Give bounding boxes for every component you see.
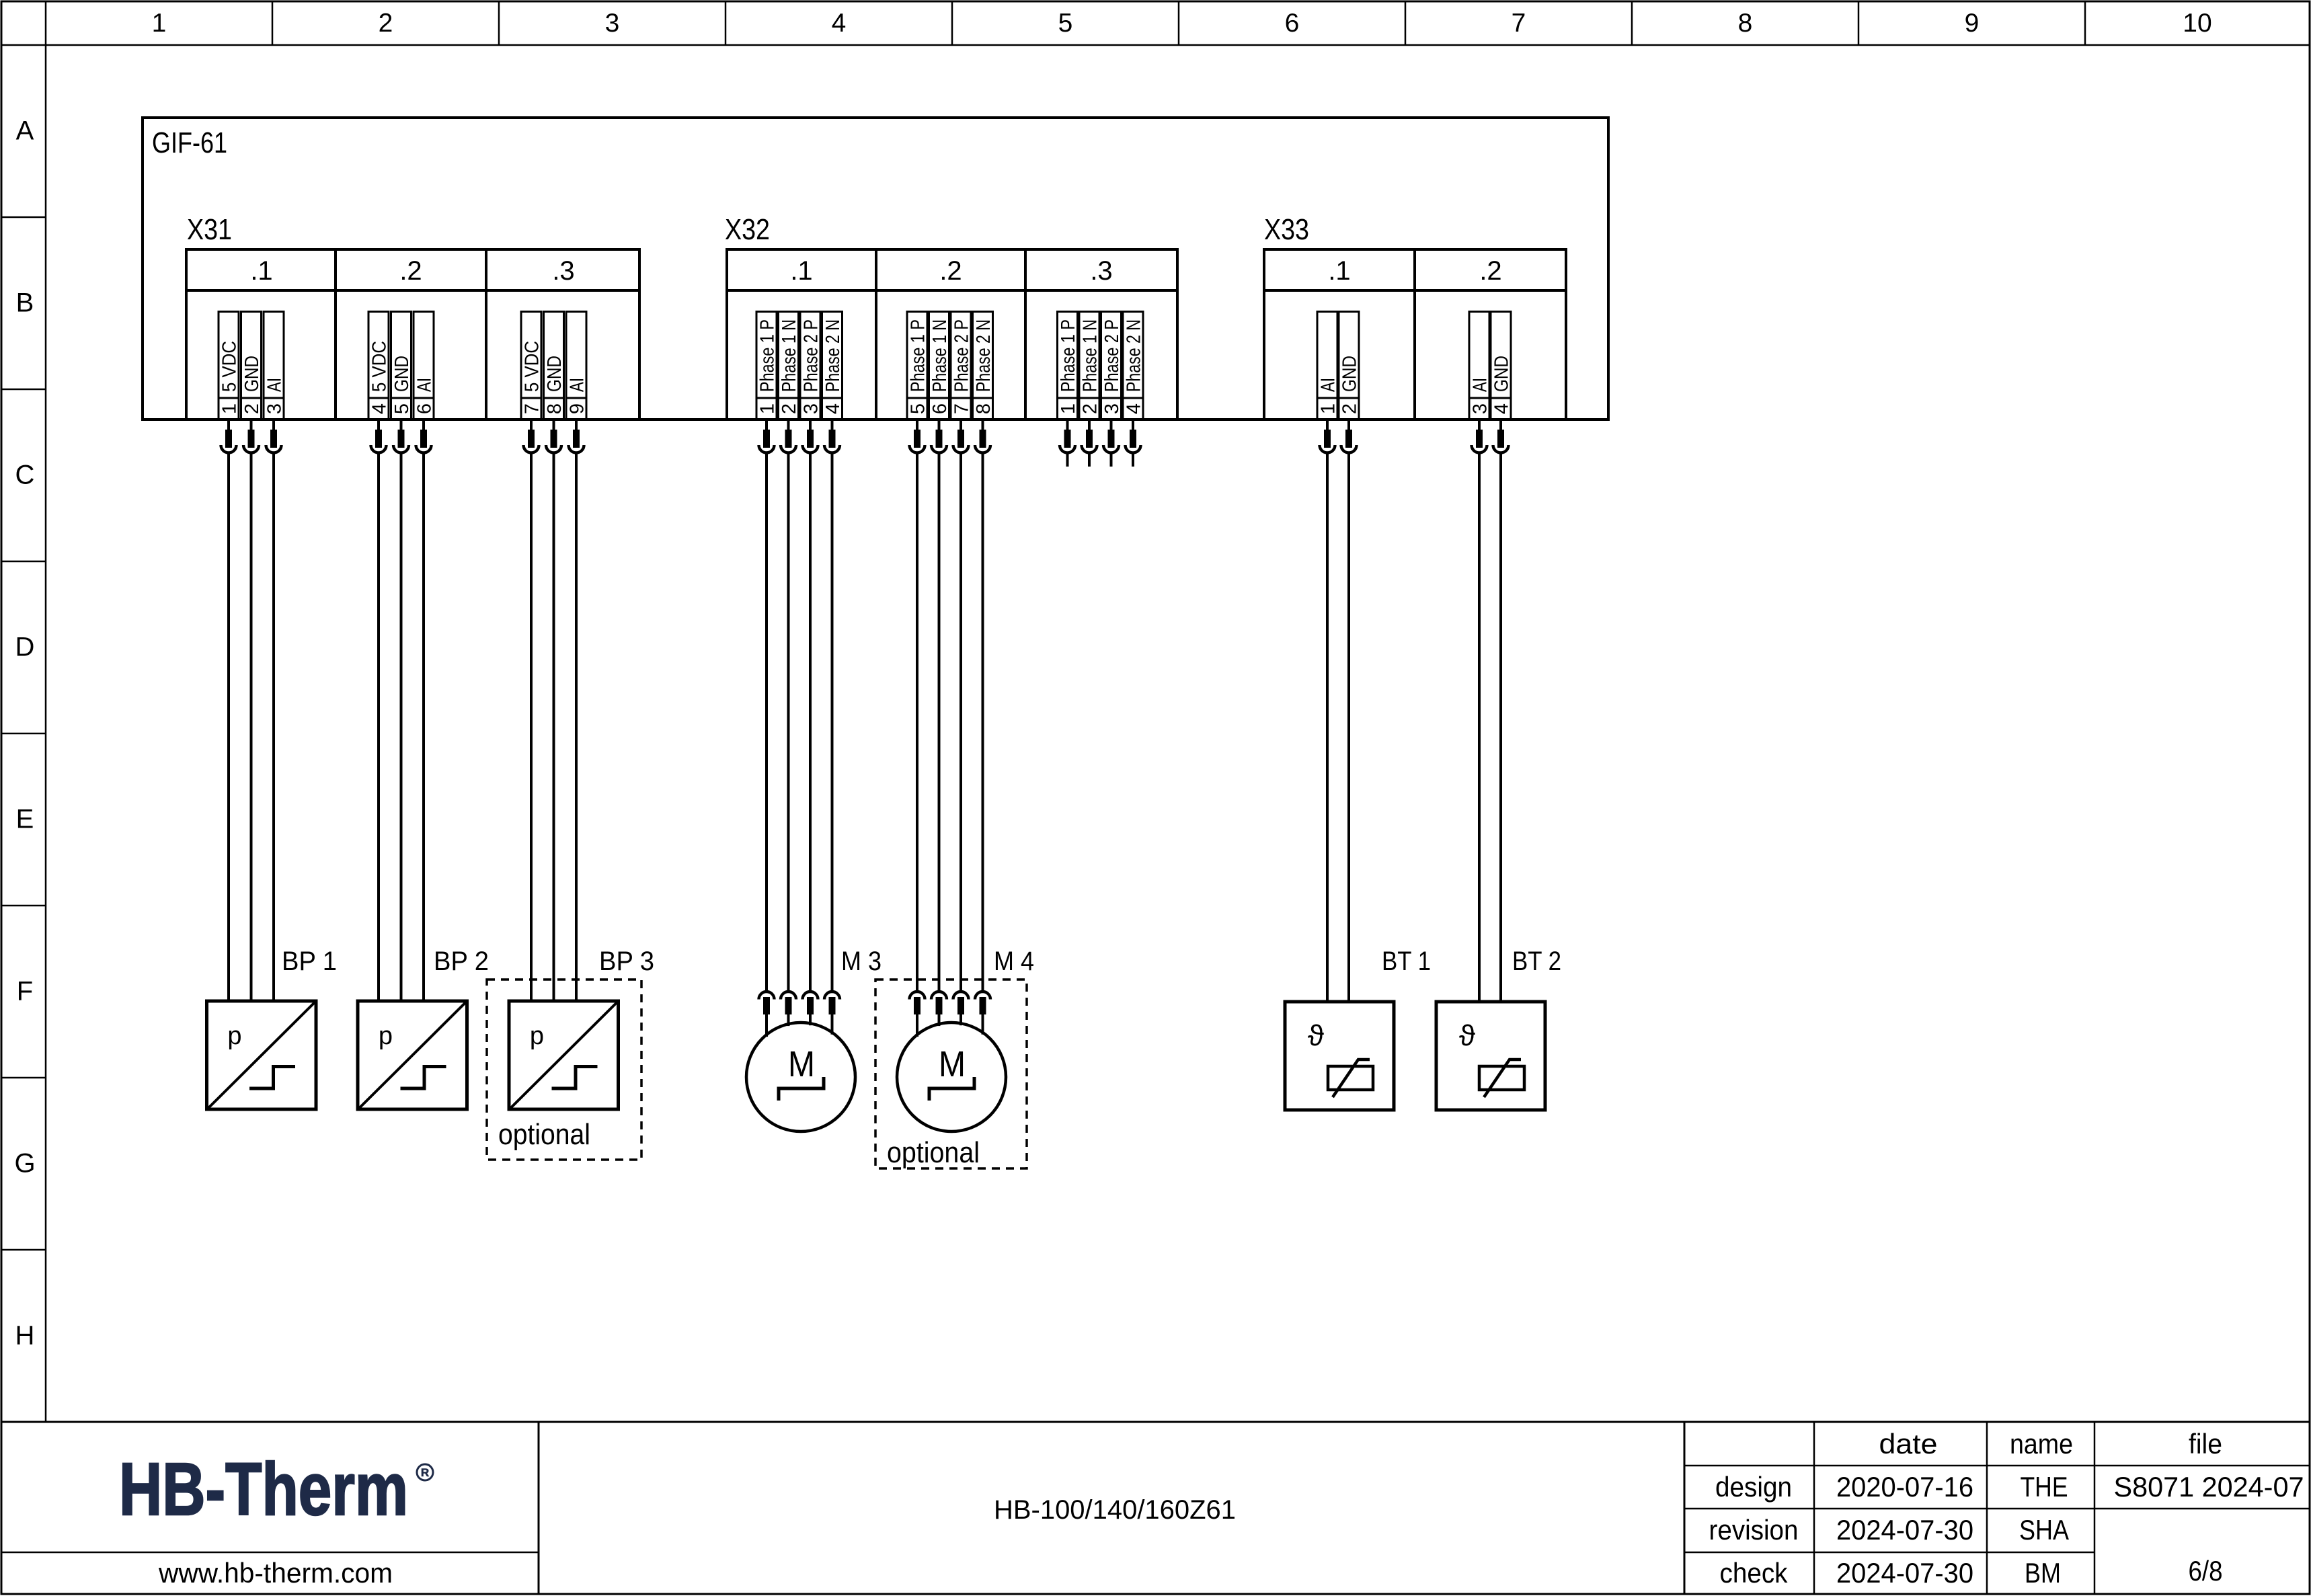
- svg-text:Phase 1 N: Phase 1 N: [779, 319, 800, 392]
- svg-text:design: design: [1715, 1471, 1792, 1503]
- svg-text:1: 1: [219, 403, 241, 414]
- svg-text:Phase 2 N: Phase 2 N: [1124, 319, 1145, 392]
- svg-text:6: 6: [929, 403, 951, 414]
- svg-text:5: 5: [1058, 9, 1073, 38]
- svg-text:S8071 2024-07: S8071 2024-07: [2114, 1471, 2304, 1503]
- svg-text:BP 2: BP 2: [434, 947, 489, 976]
- svg-text:7: 7: [522, 403, 543, 414]
- svg-text:GND: GND: [391, 356, 413, 392]
- svg-text:optional: optional: [887, 1136, 980, 1169]
- svg-text:Phase 2 P: Phase 2 P: [1101, 319, 1123, 392]
- svg-text:.2: .2: [939, 256, 962, 286]
- svg-text:H: H: [15, 1321, 35, 1351]
- svg-text:BP 3: BP 3: [599, 947, 654, 976]
- svg-text:5 VDC: 5 VDC: [369, 341, 391, 392]
- svg-text:BT 2: BT 2: [1512, 947, 1561, 976]
- svg-text:X33: X33: [1264, 213, 1309, 246]
- svg-text:Phase 1 N: Phase 1 N: [1080, 319, 1101, 392]
- svg-text:GND: GND: [544, 356, 565, 392]
- svg-text:3: 3: [1470, 403, 1491, 414]
- svg-text:Phase 1 P: Phase 1 P: [757, 319, 779, 392]
- svg-text:9: 9: [1965, 9, 1980, 38]
- svg-text:Phase 1 P: Phase 1 P: [1058, 319, 1079, 392]
- svg-text:4: 4: [1124, 403, 1145, 414]
- svg-text:Phase 2 N: Phase 2 N: [973, 319, 994, 392]
- svg-text:R: R: [421, 1466, 429, 1479]
- svg-text:6/8: 6/8: [2189, 1555, 2223, 1587]
- svg-text:9: 9: [567, 403, 588, 414]
- svg-text:2: 2: [1080, 403, 1101, 414]
- svg-text:7: 7: [1512, 9, 1526, 38]
- svg-text:3: 3: [605, 9, 620, 38]
- svg-text:2024-07-30: 2024-07-30: [1836, 1514, 1973, 1546]
- svg-text:AI: AI: [414, 378, 436, 392]
- svg-text:6: 6: [414, 403, 436, 414]
- svg-text:1: 1: [1058, 403, 1079, 414]
- svg-text:E: E: [16, 805, 34, 834]
- svg-text:ϑ: ϑ: [1308, 1019, 1324, 1052]
- svg-text:M 4: M 4: [994, 947, 1034, 976]
- svg-text:8: 8: [544, 403, 565, 414]
- svg-text:BT 1: BT 1: [1382, 947, 1431, 976]
- svg-text:6: 6: [1285, 9, 1300, 38]
- svg-text:5: 5: [908, 403, 929, 414]
- svg-text:2: 2: [1339, 403, 1361, 414]
- svg-text:BM: BM: [2025, 1557, 2061, 1589]
- svg-text:AI: AI: [567, 378, 588, 392]
- svg-text:www.hb-therm.com: www.hb-therm.com: [158, 1557, 393, 1589]
- svg-text:7: 7: [951, 403, 973, 414]
- svg-text:GIF-61: GIF-61: [152, 126, 227, 159]
- svg-text:4: 4: [369, 403, 391, 414]
- svg-text:M: M: [788, 1044, 815, 1084]
- svg-text:5 VDC: 5 VDC: [219, 341, 241, 392]
- svg-text:.1: .1: [790, 256, 812, 286]
- svg-text:4: 4: [1491, 403, 1513, 414]
- svg-text:GND: GND: [241, 356, 263, 392]
- svg-text:G: G: [14, 1149, 35, 1179]
- svg-text:A: A: [16, 116, 34, 146]
- svg-text:B: B: [16, 288, 34, 318]
- svg-text:revision: revision: [1709, 1514, 1799, 1546]
- svg-text:SHA: SHA: [2019, 1514, 2069, 1546]
- svg-text:.3: .3: [552, 256, 574, 286]
- svg-text:8: 8: [973, 403, 994, 414]
- svg-text:X31: X31: [187, 213, 232, 246]
- svg-text:4: 4: [822, 403, 844, 414]
- svg-text:HB-100/140/160Z61: HB-100/140/160Z61: [994, 1495, 1236, 1525]
- svg-text:X32: X32: [725, 213, 770, 246]
- svg-text:Phase 2 P: Phase 2 P: [801, 319, 822, 392]
- svg-text:.2: .2: [399, 256, 422, 286]
- svg-text:2024-07-30: 2024-07-30: [1836, 1557, 1973, 1589]
- svg-text:2: 2: [241, 403, 263, 414]
- svg-text:name: name: [2010, 1428, 2073, 1460]
- svg-text:p: p: [227, 1022, 241, 1050]
- svg-text:GND: GND: [1339, 356, 1361, 392]
- svg-text:date: date: [1879, 1428, 1938, 1460]
- svg-text:p: p: [530, 1022, 544, 1050]
- svg-text:1: 1: [1318, 403, 1339, 414]
- svg-text:HB-Therm: HB-Therm: [119, 1448, 408, 1531]
- svg-text:Phase 1 N: Phase 1 N: [929, 319, 951, 392]
- svg-text:2: 2: [379, 9, 393, 38]
- svg-text:F: F: [17, 977, 33, 1006]
- svg-text:BP 1: BP 1: [282, 947, 337, 976]
- svg-text:1: 1: [152, 9, 167, 38]
- svg-text:Phase 2 N: Phase 2 N: [822, 319, 844, 392]
- svg-text:THE: THE: [2021, 1471, 2068, 1503]
- svg-text:Phase 2 P: Phase 2 P: [951, 319, 973, 392]
- svg-text:check: check: [1720, 1557, 1789, 1589]
- svg-text:10: 10: [2183, 9, 2211, 38]
- svg-text:p: p: [379, 1022, 393, 1050]
- svg-text:AI: AI: [264, 378, 286, 392]
- svg-text:3: 3: [264, 403, 286, 414]
- svg-text:C: C: [15, 461, 35, 490]
- svg-text:M 3: M 3: [841, 947, 882, 976]
- svg-text:2: 2: [779, 403, 800, 414]
- svg-text:.2: .2: [1479, 256, 1501, 286]
- svg-text:file: file: [2189, 1428, 2222, 1460]
- svg-text:8: 8: [1738, 9, 1753, 38]
- svg-text:ϑ: ϑ: [1459, 1019, 1475, 1052]
- svg-text:.1: .1: [1328, 256, 1350, 286]
- svg-text:Phase 1 P: Phase 1 P: [908, 319, 929, 392]
- svg-text:M: M: [939, 1044, 966, 1084]
- svg-text:optional: optional: [498, 1118, 590, 1151]
- svg-text:GND: GND: [1491, 356, 1513, 392]
- svg-text:.1: .1: [250, 256, 272, 286]
- svg-text:5 VDC: 5 VDC: [522, 341, 543, 392]
- svg-text:D: D: [15, 633, 35, 662]
- svg-text:5: 5: [391, 403, 413, 414]
- svg-text:4: 4: [832, 9, 847, 38]
- svg-text:.3: .3: [1090, 256, 1112, 286]
- svg-text:AI: AI: [1318, 378, 1339, 392]
- svg-text:2020-07-16: 2020-07-16: [1836, 1471, 1973, 1503]
- svg-text:3: 3: [801, 403, 822, 414]
- svg-text:1: 1: [757, 403, 779, 414]
- svg-text:3: 3: [1101, 403, 1123, 414]
- svg-text:AI: AI: [1470, 378, 1491, 392]
